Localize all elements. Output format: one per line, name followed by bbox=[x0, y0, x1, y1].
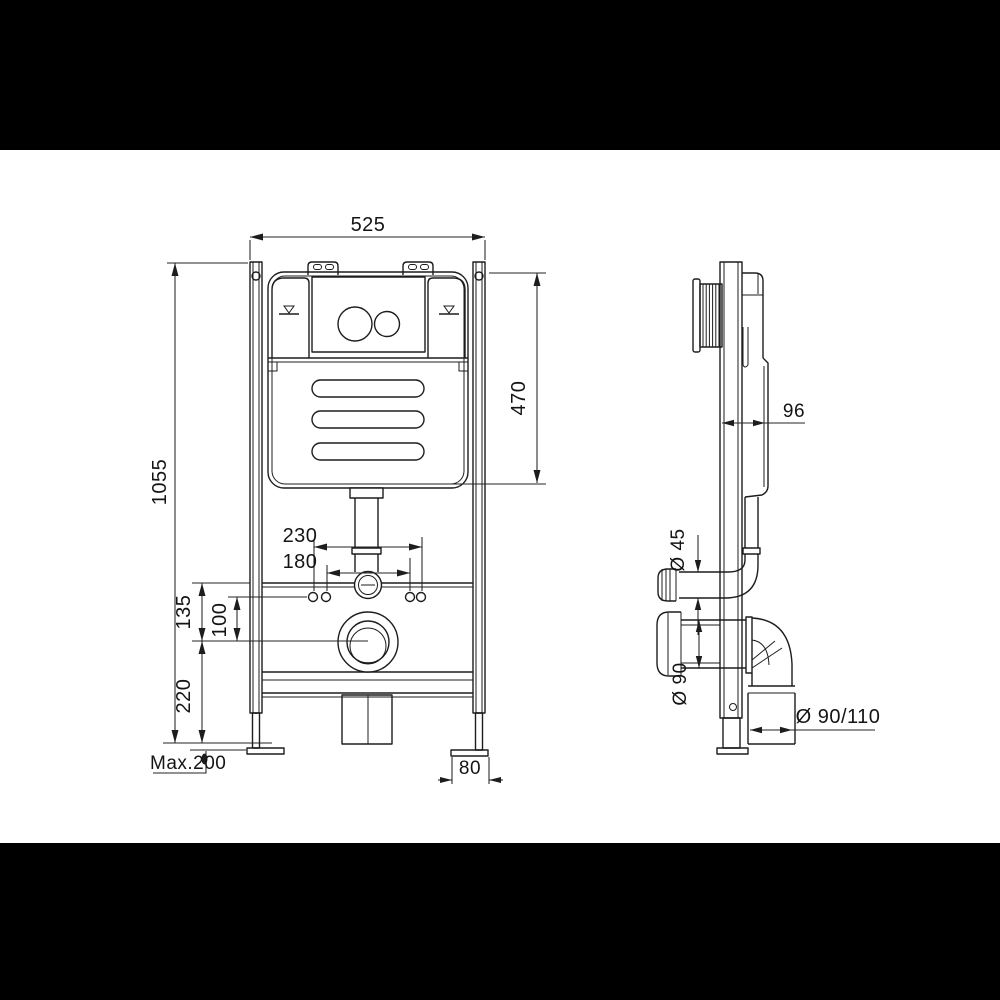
pipe-coupling bbox=[352, 548, 381, 554]
dim-label-fixing-span-outer: 230 bbox=[283, 525, 318, 547]
fixing-hole bbox=[406, 593, 415, 602]
dim-label-overall-height: 1055 bbox=[149, 459, 171, 506]
side-pipe-coupling bbox=[743, 548, 760, 554]
fixing-hole bbox=[417, 593, 426, 602]
dim-label-outlet-height: 220 bbox=[173, 679, 195, 714]
letterbox-top bbox=[0, 0, 1000, 150]
fixing-hole bbox=[322, 593, 331, 602]
dim-label-fixing-to-outlet: 100 bbox=[209, 603, 231, 638]
dim-label-fixing-span-inner: 180 bbox=[283, 551, 318, 573]
dim-label-outlet-diameter: Ø 90 bbox=[670, 662, 691, 705]
fixing-hole bbox=[309, 593, 318, 602]
screenshot: 525 1055 470 230 bbox=[0, 0, 1000, 1000]
dim-label-foot-adjustment: Max.200 bbox=[150, 753, 226, 774]
dim-label-drain-pipe-diameter: Ø 90/110 bbox=[796, 706, 881, 728]
technical-drawing-cistern-frame: 525 1055 470 230 bbox=[0, 0, 1000, 1000]
dim-label-overall-width: 525 bbox=[351, 214, 386, 236]
letterbox-bottom bbox=[0, 843, 1000, 1000]
dim-label-foot-plate-width: 80 bbox=[459, 758, 481, 779]
pipe-collar bbox=[350, 488, 383, 498]
dim-label-tank-height: 470 bbox=[508, 381, 530, 416]
dim-label-flush-pipe-diameter: Ø 45 bbox=[668, 528, 689, 571]
dim-label-frame-depth: 96 bbox=[783, 401, 805, 422]
dim-label-rail-to-outlet: 135 bbox=[173, 595, 195, 630]
